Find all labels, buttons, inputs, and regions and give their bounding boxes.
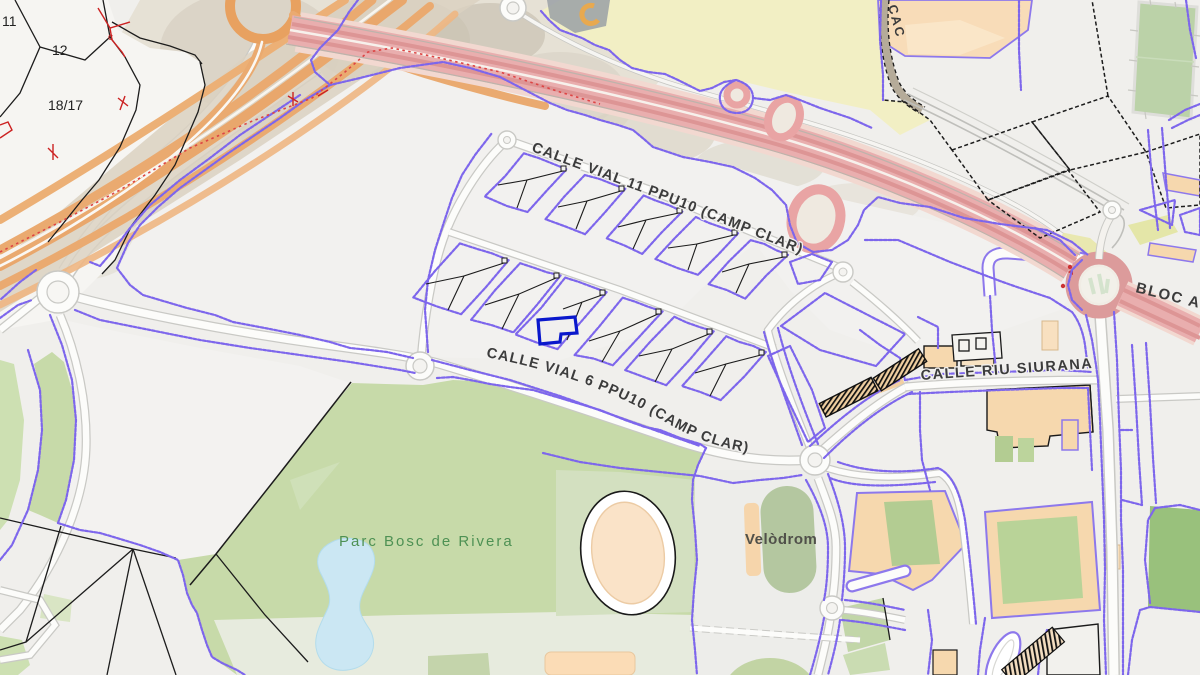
svg-text:Velòdrom: Velòdrom: [745, 531, 817, 548]
svg-text:11: 11: [2, 13, 17, 29]
svg-text:12: 12: [52, 42, 68, 58]
svg-text:18/17: 18/17: [48, 97, 83, 113]
svg-text:Parc Bosc de Rivera: Parc Bosc de Rivera: [339, 533, 514, 550]
svg-text:c: c: [108, 32, 113, 43]
